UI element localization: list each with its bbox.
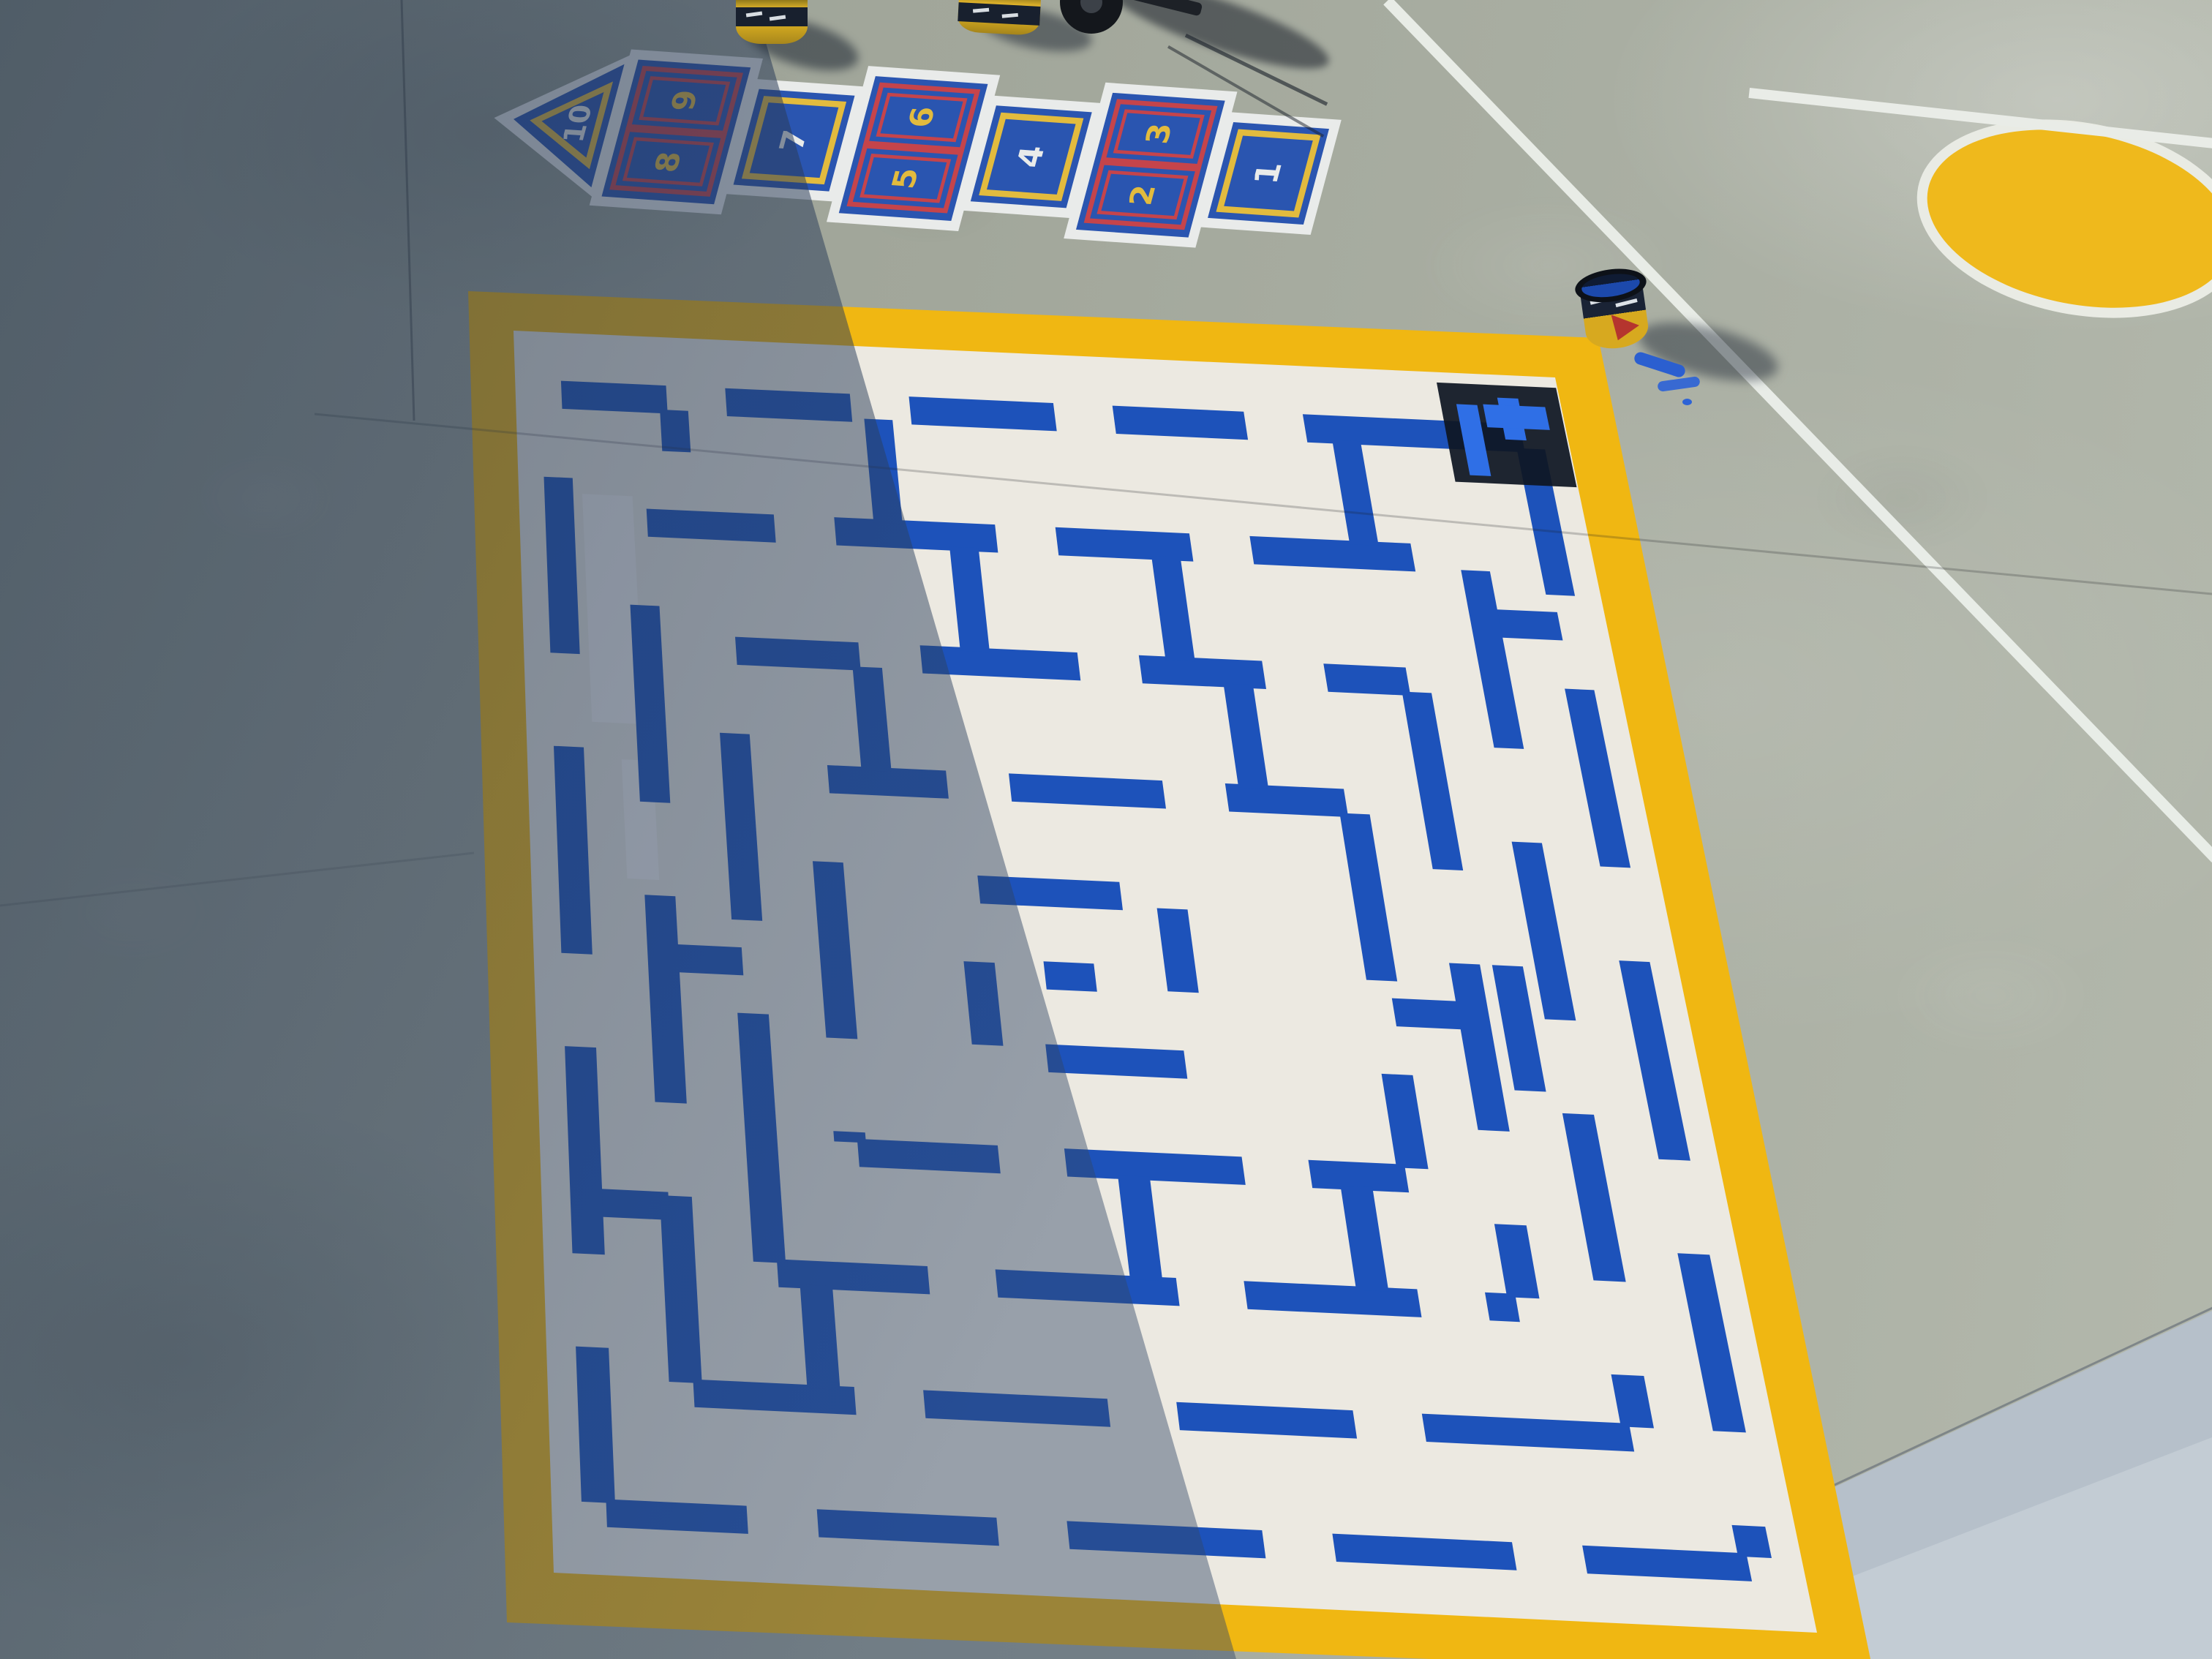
maze-wall: [593, 1189, 669, 1220]
maze-wall: [833, 1131, 866, 1143]
painted-maze: [0, 0, 2212, 1659]
open-paint-can: [1574, 271, 1655, 353]
paint-bucket: [736, 0, 808, 44]
maze-wall: [1139, 655, 1266, 689]
maze-wall: [1323, 663, 1410, 696]
paint-bucket-2-label: [958, 2, 1040, 26]
maze-wall: [1732, 1525, 1772, 1558]
stencil-fresh-paint: [1483, 405, 1550, 430]
maze-wall: [735, 637, 861, 671]
maze-wall: [725, 388, 852, 422]
playground-photo: 10 9 8 7: [0, 0, 2212, 1659]
paint-bucket-label: [736, 7, 808, 26]
blue-paint-drop: [1682, 399, 1692, 405]
maze-wall: [660, 410, 691, 453]
concrete-joint: [0, 853, 474, 906]
maze-wall: [1044, 961, 1097, 992]
concrete-joint: [402, 0, 414, 421]
paint-bucket-2: [958, 0, 1042, 36]
maze-wall: [561, 381, 668, 414]
maze-wall: [576, 1347, 615, 1504]
maze-wall: [647, 509, 776, 543]
paint-can-logo: [1611, 311, 1641, 341]
maze-wall: [1225, 783, 1348, 817]
maze-wall: [670, 944, 744, 976]
